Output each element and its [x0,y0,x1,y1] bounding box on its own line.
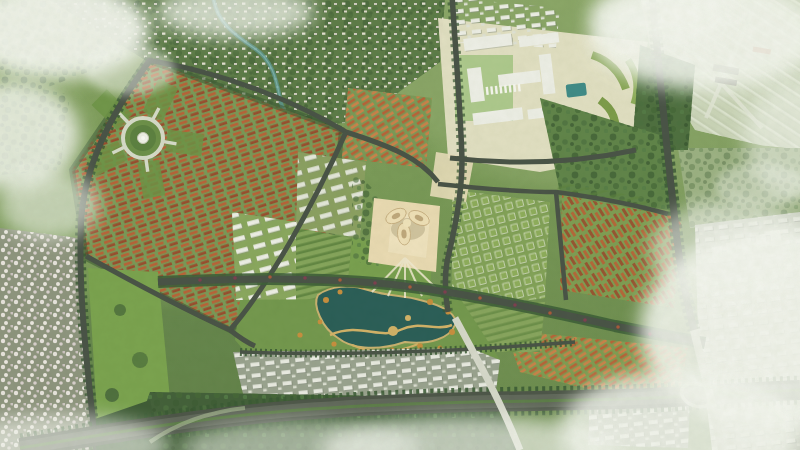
masterplan-scene [0,0,800,450]
grain-texture [0,0,800,450]
aerial-masterplan-render [0,0,800,450]
